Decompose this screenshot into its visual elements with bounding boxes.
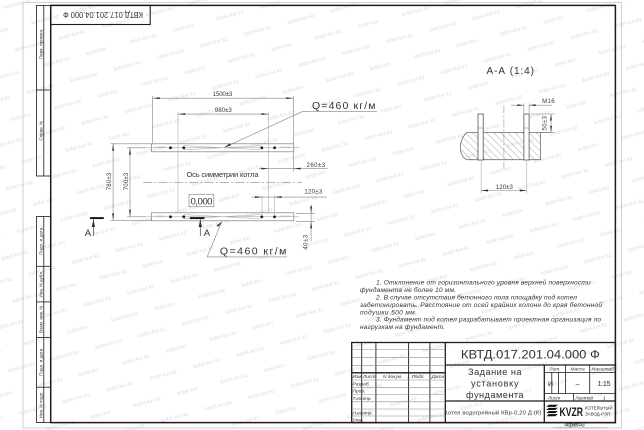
svg-text:50±3: 50±3 xyxy=(542,115,549,130)
svg-text:КВТД.017.201.04.000 Ф: КВТД.017.201.04.000 Ф xyxy=(461,348,600,362)
svg-text:КВТД.017.201.04.000 Ф: КВТД.017.201.04.000 Ф xyxy=(63,10,143,20)
svg-text:Листов: Листов xyxy=(574,395,593,401)
svg-text:Дата: Дата xyxy=(431,374,445,380)
svg-text:Формат А3: Формат А3 xyxy=(564,423,585,429)
svg-text:780±3: 780±3 xyxy=(106,172,113,190)
svg-text:Подп.: Подп. xyxy=(412,374,425,380)
svg-text:1. Отклонение от горизонтально: 1. Отклонение от горизонтального уровня … xyxy=(376,279,591,287)
svg-text:фундамента: фундамента xyxy=(466,390,524,400)
svg-text:Разраб.: Разраб. xyxy=(353,381,370,387)
svg-text:Масса: Масса xyxy=(571,366,586,372)
svg-text:установку: установку xyxy=(471,378,519,388)
svg-text:120±3: 120±3 xyxy=(304,188,323,195)
svg-text:2. В случае отсутствия бетонно: 2. В случае отсутствия бетонного пола пл… xyxy=(375,294,577,302)
svg-text:N докум.: N докум. xyxy=(383,374,402,380)
svg-text:подушки 500 мм.: подушки 500 мм. xyxy=(360,308,417,316)
svg-text:Лист: Лист xyxy=(547,395,560,401)
svg-text:ЗАВОД-РЭП: ЗАВОД-РЭП xyxy=(585,411,610,416)
svg-text:нагрузкам на фундамент.: нагрузкам на фундамент. xyxy=(360,323,445,331)
svg-text:А-А (1:4): А-А (1:4) xyxy=(487,66,535,77)
svg-text:фундамента не более 10 мм.: фундамента не более 10 мм. xyxy=(360,286,456,294)
svg-text:Т.контр.: Т.контр. xyxy=(353,396,372,402)
svg-text:Перв. примен.: Перв. примен. xyxy=(38,29,43,60)
svg-text:Котел водогрейный КВр-0,20 Д (: Котел водогрейный КВр-0,20 Д (К) xyxy=(444,409,541,416)
svg-text:М16: М16 xyxy=(542,98,555,105)
svg-text:А: А xyxy=(85,228,92,239)
svg-text:Масштаб: Масштаб xyxy=(591,366,614,372)
svg-text:Пров.: Пров. xyxy=(353,389,366,395)
svg-text:И: И xyxy=(548,381,553,388)
svg-text:Подп. и дата: Подп. и дата xyxy=(38,348,43,376)
svg-text:1:15: 1:15 xyxy=(598,379,611,388)
svg-text:3. Фундамент под котел разраба: 3. Фундамент под котел разрабатывает про… xyxy=(376,316,601,324)
svg-text:Лист: Лист xyxy=(362,374,375,380)
svg-text:Справ. N: Справ. N xyxy=(38,121,43,140)
svg-text:Утв.: Утв. xyxy=(353,418,364,424)
svg-text:Q=460 кг/м: Q=460 кг/м xyxy=(220,245,287,257)
svg-text:Н.контр.: Н.контр. xyxy=(353,410,373,416)
svg-text:А: А xyxy=(204,228,211,239)
svg-text:980±3: 980±3 xyxy=(215,107,233,114)
svg-text:0,000: 0,000 xyxy=(191,196,213,207)
svg-text:KVZR: KVZR xyxy=(560,407,584,419)
svg-text:Задание на: Задание на xyxy=(468,367,522,377)
svg-text:забетонировать. Расстояние от: забетонировать. Расстояние от осей крайн… xyxy=(359,301,602,309)
svg-text:Подп. и дата: Подп. и дата xyxy=(38,227,43,255)
svg-text:Инв. N дубл.: Инв. N дубл. xyxy=(38,271,43,298)
svg-text:40±3: 40±3 xyxy=(303,234,310,250)
svg-text:700±3: 700±3 xyxy=(123,172,130,190)
svg-text:1500±3: 1500±3 xyxy=(213,91,233,98)
svg-text:Взам. инв. N: Взам. инв. N xyxy=(38,306,43,333)
svg-text:Q=460 кг/м: Q=460 кг/м xyxy=(312,100,376,112)
svg-text:–: – xyxy=(576,381,580,388)
svg-text:КОТЕЛЬНЫЙ: КОТЕЛЬНЫЙ xyxy=(585,405,613,410)
svg-text:Ось симметрии котла: Ось симметрии котла xyxy=(187,170,260,179)
svg-text:Изм.: Изм. xyxy=(353,374,363,380)
svg-text:1: 1 xyxy=(603,395,606,401)
svg-text:120±3: 120±3 xyxy=(496,184,514,191)
svg-text:Инв. N подл.: Инв. N подл. xyxy=(38,391,43,418)
svg-text:Лит.: Лит. xyxy=(548,366,560,372)
svg-text:260±3: 260±3 xyxy=(307,162,326,169)
